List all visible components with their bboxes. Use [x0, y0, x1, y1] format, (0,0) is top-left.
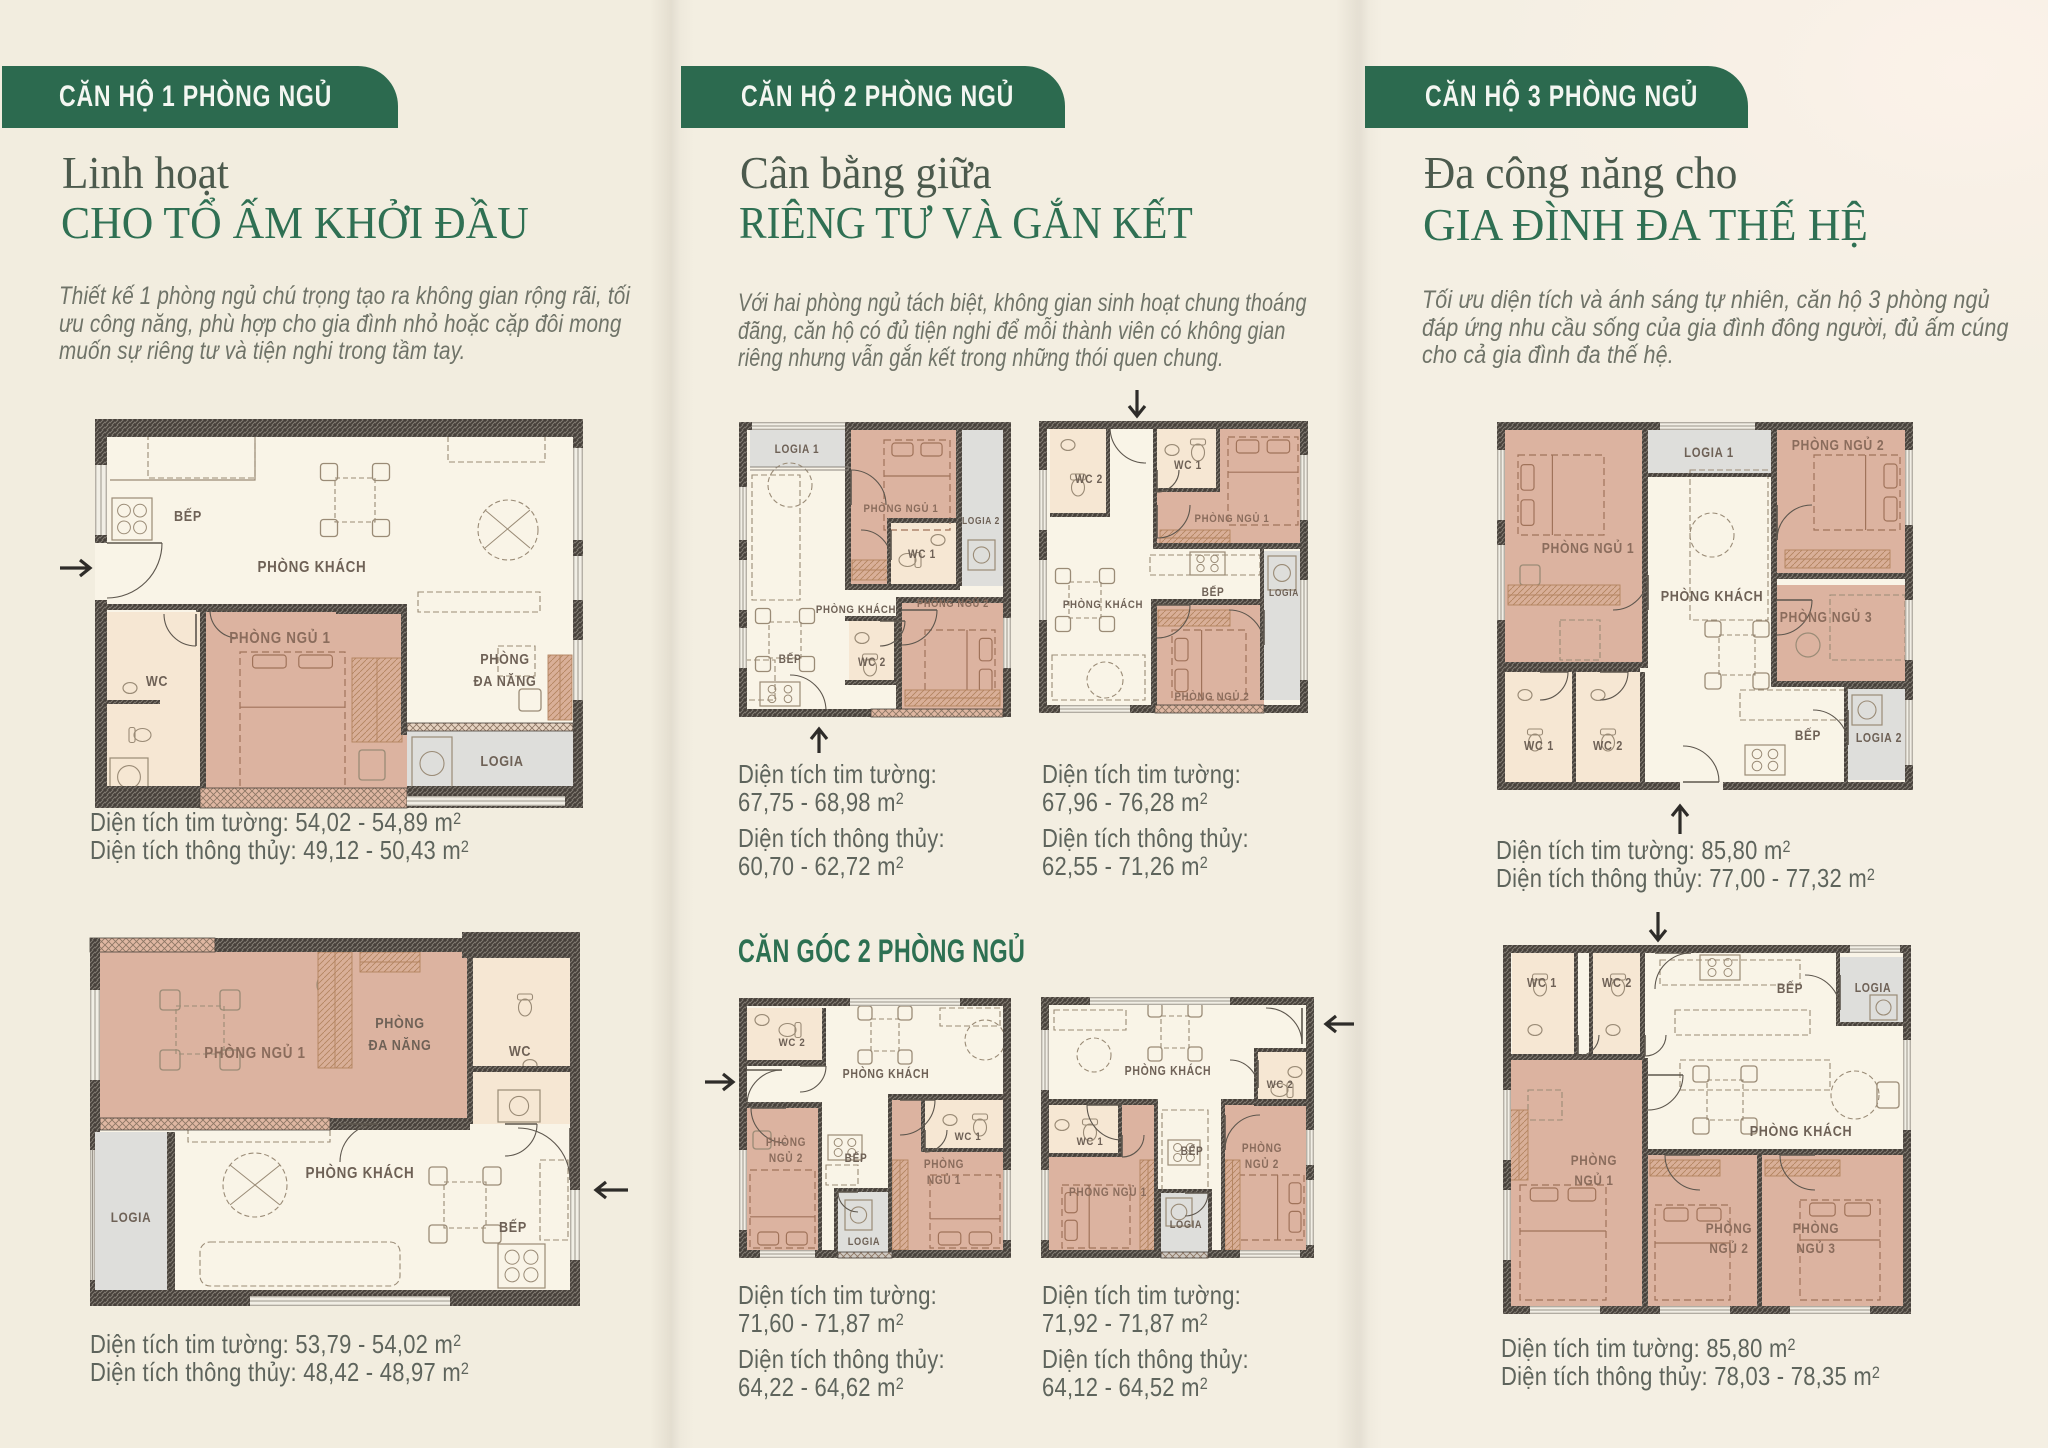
svg-text:WC 1: WC 1: [908, 548, 936, 561]
svg-text:WC 1: WC 1: [955, 1130, 982, 1143]
svg-text:BẾP: BẾP: [779, 652, 802, 666]
svg-text:PHÒNG: PHÒNG: [480, 649, 530, 667]
svg-text:LOGIA 2: LOGIA 2: [962, 515, 1000, 526]
svg-text:WC: WC: [146, 672, 168, 689]
svg-text:WC 1: WC 1: [1077, 1135, 1104, 1148]
svg-text:PHÒNG NGỦ 2: PHÒNG NGỦ 2: [1175, 689, 1250, 703]
svg-text:ĐA NĂNG: ĐA NĂNG: [473, 672, 536, 689]
svg-text:LOGIA: LOGIA: [480, 752, 523, 769]
svg-text:PHÒNG KHÁCH: PHÒNG KHÁCH: [1661, 586, 1764, 604]
svg-text:NGỦ 2: NGỦ 2: [1709, 1240, 1748, 1256]
svg-text:LOGIA: LOGIA: [1269, 587, 1299, 598]
svg-text:BẾP: BẾP: [1795, 727, 1821, 743]
svg-text:LOGIA 2: LOGIA 2: [1856, 732, 1902, 745]
svg-text:NGỦ 2: NGỦ 2: [769, 1151, 803, 1165]
svg-text:PHÒNG: PHÒNG: [924, 1157, 964, 1171]
svg-text:WC 2: WC 2: [1602, 975, 1632, 990]
svg-text:LOGIA: LOGIA: [111, 1209, 152, 1225]
svg-text:PHÒNG NGỦ 2: PHÒNG NGỦ 2: [917, 596, 989, 610]
svg-text:WC 2: WC 2: [1075, 473, 1103, 486]
svg-text:PHÒNG KHÁCH: PHÒNG KHÁCH: [306, 1163, 415, 1182]
svg-text:PHÒNG: PHÒNG: [1706, 1220, 1752, 1236]
svg-text:NGỦ 2: NGỦ 2: [1245, 1157, 1279, 1171]
svg-text:BẾP: BẾP: [845, 1151, 868, 1165]
svg-text:WC 2: WC 2: [1593, 738, 1623, 753]
svg-text:LOGIA: LOGIA: [848, 1236, 881, 1248]
svg-text:PHÒNG NGỦ 1: PHÒNG NGỦ 1: [1069, 1185, 1147, 1199]
svg-text:PHÒNG KHÁCH: PHÒNG KHÁCH: [843, 1067, 930, 1081]
svg-text:NGỦ 1: NGỦ 1: [1574, 1172, 1613, 1188]
svg-text:WC 2: WC 2: [858, 656, 886, 669]
svg-text:WC 2: WC 2: [779, 1036, 806, 1049]
svg-text:PHÒNG NGỦ 1: PHÒNG NGỦ 1: [204, 1043, 305, 1062]
svg-text:BẾP: BẾP: [499, 1218, 527, 1235]
svg-text:PHÒNG NGỦ 1: PHÒNG NGỦ 1: [1542, 540, 1635, 556]
svg-text:LOGIA: LOGIA: [1170, 1219, 1203, 1231]
svg-text:WC 2: WC 2: [1267, 1078, 1294, 1091]
svg-text:PHÒNG NGỦ 1: PHÒNG NGỦ 1: [1195, 511, 1270, 525]
svg-text:PHÒNG: PHÒNG: [766, 1135, 806, 1149]
svg-text:PHÒNG KHÁCH: PHÒNG KHÁCH: [1125, 1064, 1212, 1078]
svg-text:PHÒNG NGỦ 1: PHÒNG NGỦ 1: [864, 501, 939, 515]
svg-text:WC 1: WC 1: [1174, 459, 1202, 472]
svg-text:WC 1: WC 1: [1527, 975, 1557, 990]
svg-text:PHÒNG: PHÒNG: [1571, 1152, 1617, 1168]
svg-text:PHÒNG: PHÒNG: [1793, 1220, 1839, 1236]
svg-text:PHÒNG NGỦ 1: PHÒNG NGỦ 1: [229, 628, 330, 647]
svg-text:NGỦ 3: NGỦ 3: [1796, 1240, 1835, 1256]
svg-text:LOGIA 1: LOGIA 1: [775, 443, 820, 456]
svg-text:BẾP: BẾP: [1181, 1144, 1204, 1158]
svg-text:BẾP: BẾP: [1777, 980, 1803, 996]
svg-text:ĐA NĂNG: ĐA NĂNG: [368, 1036, 431, 1053]
svg-text:PHÒNG: PHÒNG: [1242, 1141, 1282, 1155]
svg-text:PHÒNG KHÁCH: PHÒNG KHÁCH: [258, 557, 367, 576]
svg-text:LOGIA 1: LOGIA 1: [1684, 445, 1734, 460]
svg-text:BẾP: BẾP: [1202, 585, 1225, 599]
svg-text:BẾP: BẾP: [174, 507, 202, 524]
svg-text:PHÒNG KHÁCH: PHÒNG KHÁCH: [816, 602, 896, 616]
svg-text:PHÒNG NGỦ 2: PHÒNG NGỦ 2: [1792, 437, 1885, 453]
svg-text:PHÒNG KHÁCH: PHÒNG KHÁCH: [1750, 1121, 1853, 1139]
svg-text:PHÒNG NGỦ 3: PHÒNG NGỦ 3: [1780, 609, 1873, 625]
svg-text:WC: WC: [509, 1042, 531, 1059]
svg-text:NGỦ 1: NGỦ 1: [927, 1173, 961, 1187]
svg-text:PHÒNG: PHÒNG: [375, 1013, 425, 1031]
svg-text:WC 1: WC 1: [1524, 738, 1554, 753]
svg-text:LOGIA: LOGIA: [1855, 982, 1892, 995]
svg-text:PHÒNG KHÁCH: PHÒNG KHÁCH: [1063, 597, 1143, 611]
